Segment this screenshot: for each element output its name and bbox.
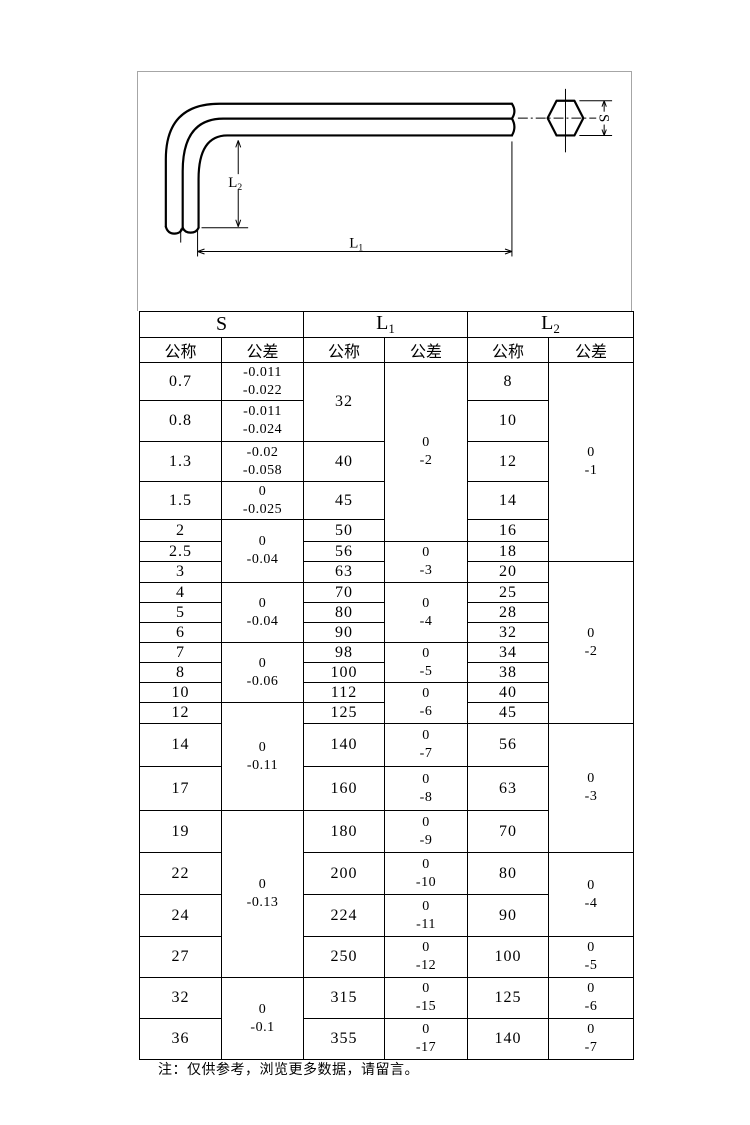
cell-l1-tolerance: 0-11 [385,895,468,937]
cell-l2-nominal: 16 [468,520,549,542]
cell-l2-nominal: 28 [468,603,549,623]
cell-l1-nominal: 50 [304,520,385,542]
hex-key-tip-cap [166,227,199,234]
cell-l2-nominal: 18 [468,542,549,562]
spec-row: 272500-121000-5 [140,937,634,978]
cell-l1-nominal: 70 [304,583,385,603]
cell-s-tolerance: 0-0.06 [222,643,304,703]
cell-l2-nominal: 70 [468,811,549,853]
subheader-nominal: 公称 [468,338,549,363]
cell-l2-tolerance: 0-1 [549,363,634,562]
cell-s-tolerance: 0-0.1 [222,978,304,1060]
cell-l1-nominal: 180 [304,811,385,853]
cell-s-tolerance: -0.011-0.024 [222,401,304,442]
cell-s-nominal: 1.5 [140,482,222,520]
cell-l1-nominal: 45 [304,482,385,520]
spec-row: 320-0.13150-151250-6 [140,978,634,1019]
cell-l1-tolerance: 0-5 [385,643,468,683]
cell-l2-nominal: 10 [468,401,549,442]
spec-row: 0.7-0.011-0.022320-280-1 [140,363,634,401]
cell-s-tolerance: 0-0.04 [222,520,304,583]
cell-s-nominal: 19 [140,811,222,853]
cell-l1-nominal: 100 [304,663,385,683]
cell-l1-nominal: 140 [304,724,385,767]
cell-l2-tolerance: 0-3 [549,724,634,853]
hex-key-right-end-cap [512,104,514,136]
spec-row: 222000-10800-4 [140,853,634,895]
cell-l2-nominal: 38 [468,663,549,683]
cell-s-tolerance: 0-0.13 [222,811,304,978]
dimension-spec-table: SL1L2公称公差公称公差公称公差 0.7-0.011-0.022320-280… [139,311,634,1060]
cell-l1-tolerance: 0-8 [385,767,468,811]
cell-s-nominal: 5 [140,603,222,623]
cell-l1-nominal: 315 [304,978,385,1019]
cell-s-nominal: 2.5 [140,542,222,562]
spec-row: 363550-171400-7 [140,1019,634,1060]
cell-l1-tolerance: 0-4 [385,583,468,643]
page: L2 L1 S SL1L2公称公差公称 [0,0,750,1125]
cell-l1-nominal: 98 [304,643,385,663]
cell-l2-nominal: 14 [468,482,549,520]
cell-l2-nominal: 32 [468,623,549,643]
subheader-tolerance: 公差 [549,338,634,363]
cell-l1-nominal: 160 [304,767,385,811]
cell-l2-tolerance: 0-7 [549,1019,634,1060]
cell-l1-nominal: 63 [304,562,385,583]
cell-l2-nominal: 34 [468,643,549,663]
cell-l1-nominal: 224 [304,895,385,937]
cell-l2-nominal: 25 [468,583,549,603]
table-body: 0.7-0.011-0.022320-280-10.8-0.011-0.0241… [140,363,634,1060]
hex-key-outer-edge [166,104,512,227]
column-group-s: S [140,312,304,338]
cell-s-nominal: 4 [140,583,222,603]
cell-s-nominal: 32 [140,978,222,1019]
cell-l2-tolerance: 0-4 [549,853,634,937]
cell-l2-nominal: 56 [468,724,549,767]
dimension-label-l1: L1 [349,236,363,254]
cell-l2-tolerance: 0-5 [549,937,634,978]
subheader-tolerance: 公差 [222,338,304,363]
cell-l2-tolerance: 0-6 [549,978,634,1019]
cell-s-nominal: 3 [140,562,222,583]
cell-s-tolerance: 0-0.11 [222,703,304,811]
cell-s-nominal: 22 [140,853,222,895]
cell-l1-nominal: 56 [304,542,385,562]
cell-l1-tolerance: 0-15 [385,978,468,1019]
cell-l1-tolerance: 0-10 [385,853,468,895]
cell-s-tolerance: -0.02-0.058 [222,442,304,482]
cell-l1-tolerance: 0-9 [385,811,468,853]
cell-l1-tolerance: 0-6 [385,683,468,724]
cell-l1-tolerance: 0-7 [385,724,468,767]
dimension-label-s: S [596,114,612,122]
cell-l1-nominal: 125 [304,703,385,724]
column-group-l1: L1 [304,312,468,338]
cell-l1-nominal: 112 [304,683,385,703]
cell-l1-tolerance: 0-2 [385,363,468,542]
subheader-tolerance: 公差 [385,338,468,363]
cell-l2-nominal: 140 [468,1019,549,1060]
cell-l1-tolerance: 0-12 [385,937,468,978]
cell-s-nominal: 7 [140,643,222,663]
cell-l2-nominal: 63 [468,767,549,811]
cell-l2-nominal: 100 [468,937,549,978]
cell-s-nominal: 8 [140,663,222,683]
cell-l1-nominal: 355 [304,1019,385,1060]
cell-l2-nominal: 90 [468,895,549,937]
cell-l2-nominal: 8 [468,363,549,401]
technical-drawing-panel: L2 L1 S [137,71,632,311]
cell-s-nominal: 12 [140,703,222,724]
cell-l1-nominal: 80 [304,603,385,623]
cell-s-nominal: 0.8 [140,401,222,442]
cell-l2-nominal: 125 [468,978,549,1019]
subheader-nominal: 公称 [304,338,385,363]
subheader-nominal: 公称 [140,338,222,363]
cell-s-tolerance: -0.011-0.022 [222,363,304,401]
column-group-l2: L2 [468,312,634,338]
cell-s-nominal: 2 [140,520,222,542]
cell-s-nominal: 6 [140,623,222,643]
cell-s-nominal: 10 [140,683,222,703]
footnote: 注：仅供参考，浏览更多数据，请留言。 [158,1059,419,1079]
cell-s-nominal: 14 [140,724,222,767]
cell-l2-tolerance: 0-2 [549,562,634,724]
cell-l1-tolerance: 0-17 [385,1019,468,1060]
cell-l2-nominal: 12 [468,442,549,482]
cell-s-tolerance: 0-0.025 [222,482,304,520]
cell-l2-nominal: 80 [468,853,549,895]
table-header: SL1L2公称公差公称公差公称公差 [140,312,634,363]
cell-l1-nominal: 40 [304,442,385,482]
cell-s-nominal: 1.3 [140,442,222,482]
cell-l1-nominal: 32 [304,363,385,442]
cell-l1-tolerance: 0-3 [385,542,468,583]
cell-l2-nominal: 20 [468,562,549,583]
cell-s-nominal: 36 [140,1019,222,1060]
cell-l2-nominal: 45 [468,703,549,724]
cell-l1-nominal: 200 [304,853,385,895]
cell-s-nominal: 17 [140,767,222,811]
cell-s-nominal: 24 [140,895,222,937]
hex-key-diagram: L2 L1 S [138,72,631,310]
cell-s-tolerance: 0-0.04 [222,583,304,643]
cell-s-nominal: 0.7 [140,363,222,401]
cell-s-nominal: 27 [140,937,222,978]
cell-l2-nominal: 40 [468,683,549,703]
cell-l1-nominal: 250 [304,937,385,978]
spec-row: 141400-7560-3 [140,724,634,767]
cell-l1-nominal: 90 [304,623,385,643]
